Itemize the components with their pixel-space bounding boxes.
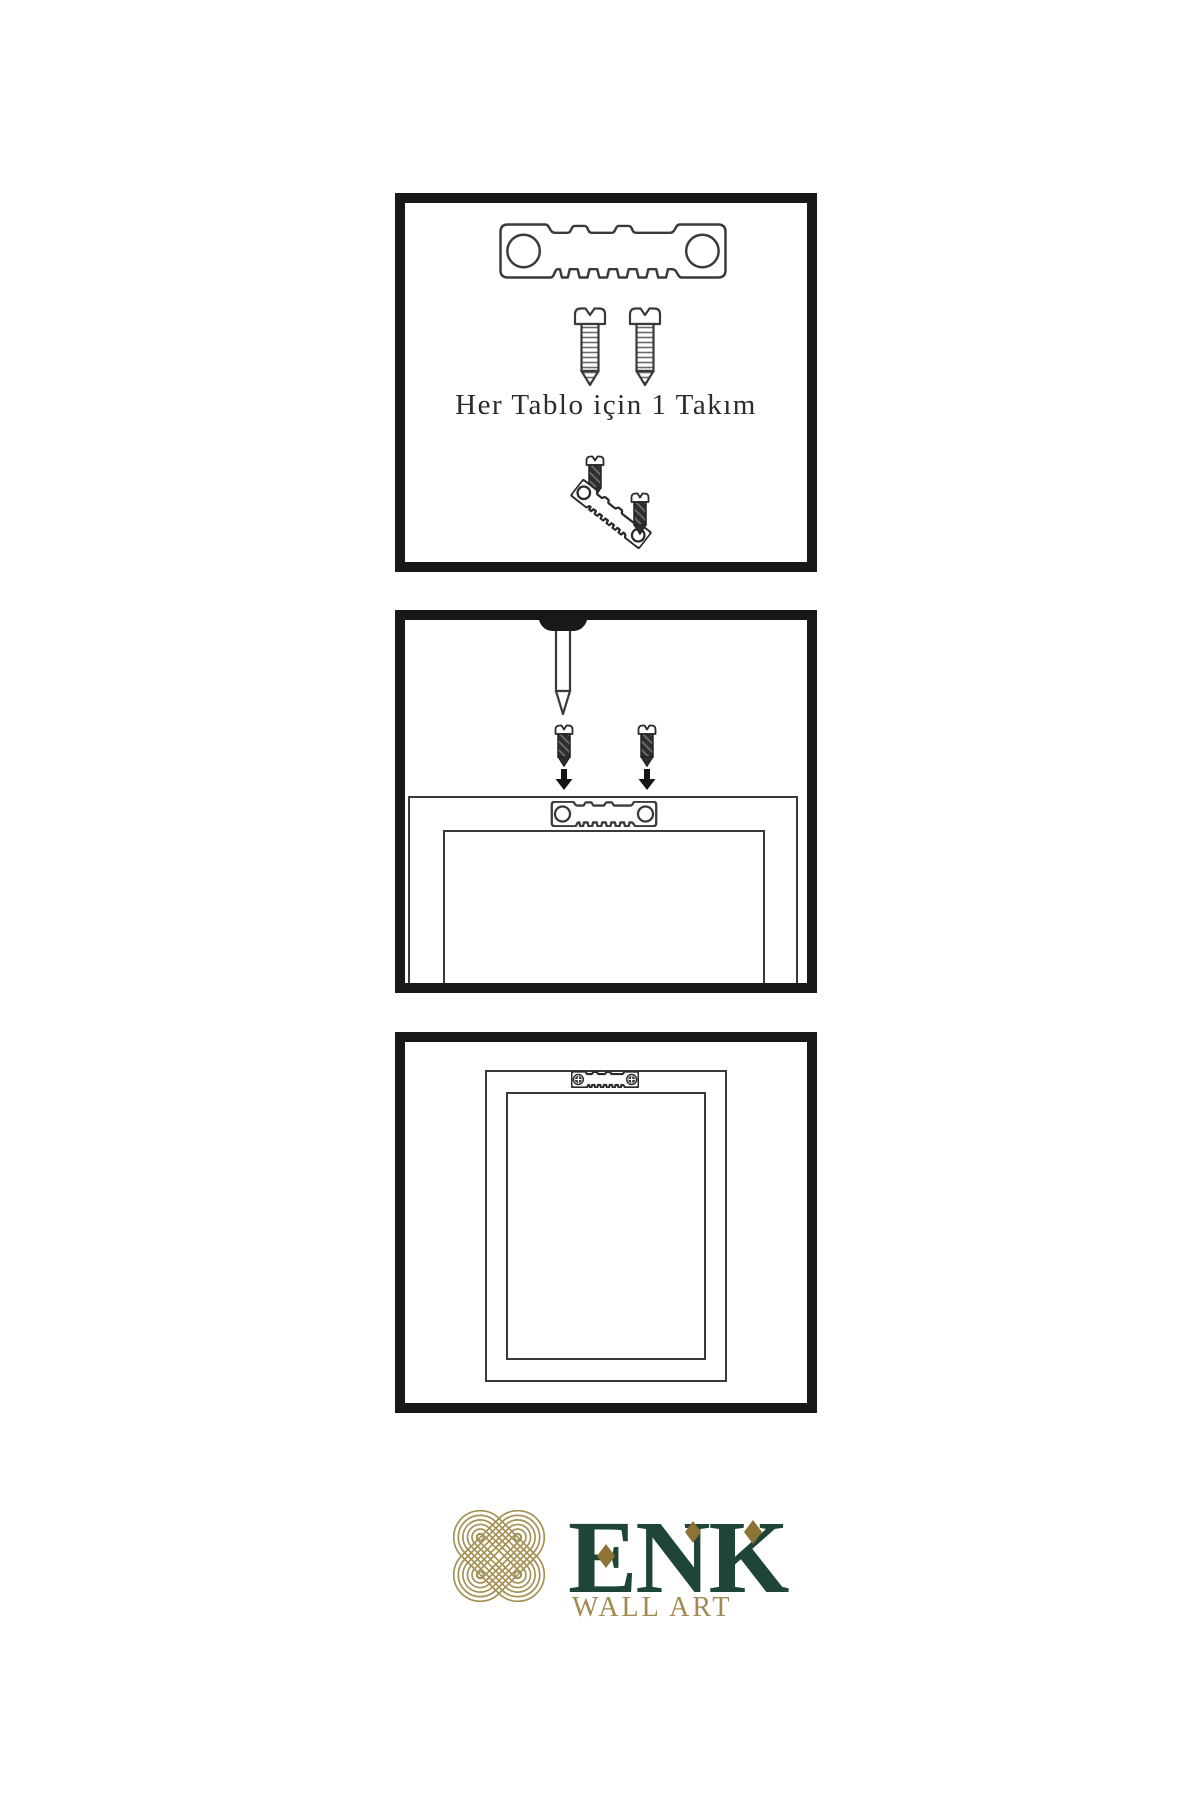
mini-screw-icon: [553, 723, 575, 767]
step-panel-hardware-kit: Her Tablo için 1 Takım: [395, 193, 817, 572]
mini-screw-icon: [629, 491, 651, 535]
sawtooth-hanger-icon: [550, 801, 658, 827]
brand-tagline: WALL ART: [572, 1594, 733, 1622]
down-arrow-icon: [638, 769, 656, 790]
diamond-accent-icon: [597, 1544, 615, 1568]
diamond-accent-icon: [744, 1520, 762, 1544]
screw-icon: [571, 305, 609, 387]
mini-screw-icon: [636, 723, 658, 767]
frame-back-inner-outline: [506, 1092, 706, 1360]
sawtooth-hanger-with-screws-icon: [571, 1071, 639, 1088]
wall-nail-icon: [537, 620, 589, 720]
diamond-accent-icon: [685, 1521, 701, 1543]
sawtooth-hanger-icon: [498, 223, 728, 279]
down-arrow-icon: [555, 769, 573, 790]
frame-back-inner-outline: [443, 830, 765, 983]
screw-icon: [626, 305, 664, 387]
interlaced-knot-icon: [435, 1488, 563, 1624]
frame-back-outline: [485, 1070, 727, 1382]
kit-caption: Her Tablo için 1 Takım: [405, 389, 807, 422]
step-panel-wall-installation: [395, 610, 817, 993]
step-panel-hung-frame: [395, 1032, 817, 1413]
instruction-sheet: Her Tablo için 1 Takım: [0, 0, 1200, 1800]
